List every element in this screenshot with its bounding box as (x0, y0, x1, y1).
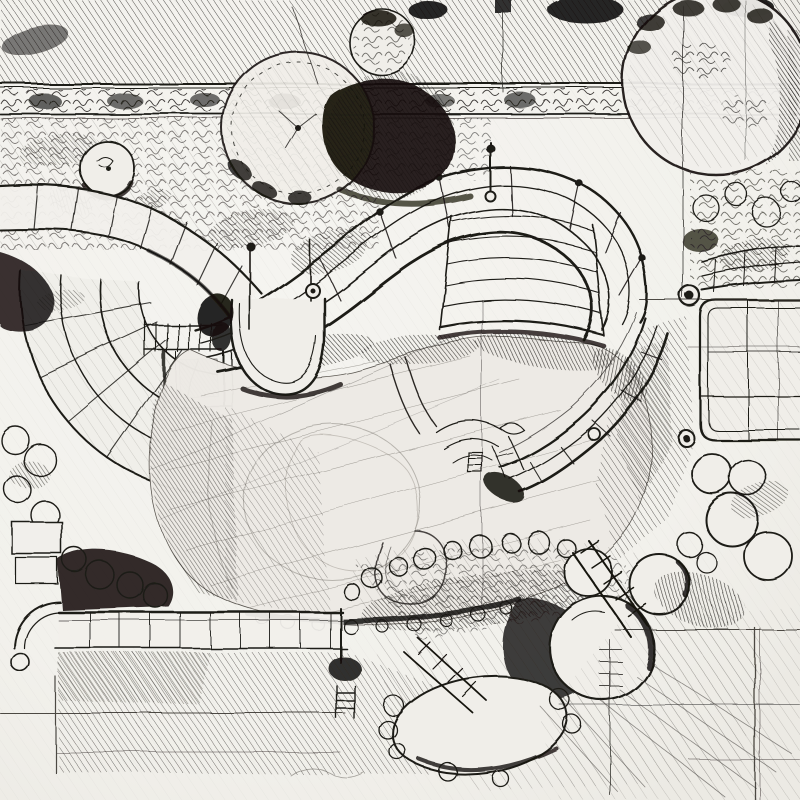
right-edge-bed (682, 170, 800, 290)
tree-canopy-small (349, 9, 415, 75)
landscape-plan-sketch (0, 0, 800, 800)
ink-drawing (0, 0, 800, 800)
sketch-canvas (0, 0, 800, 800)
small-tree-canopy (80, 141, 134, 196)
tree-canopy-top-right (623, 0, 800, 175)
patio-deck (700, 300, 800, 440)
